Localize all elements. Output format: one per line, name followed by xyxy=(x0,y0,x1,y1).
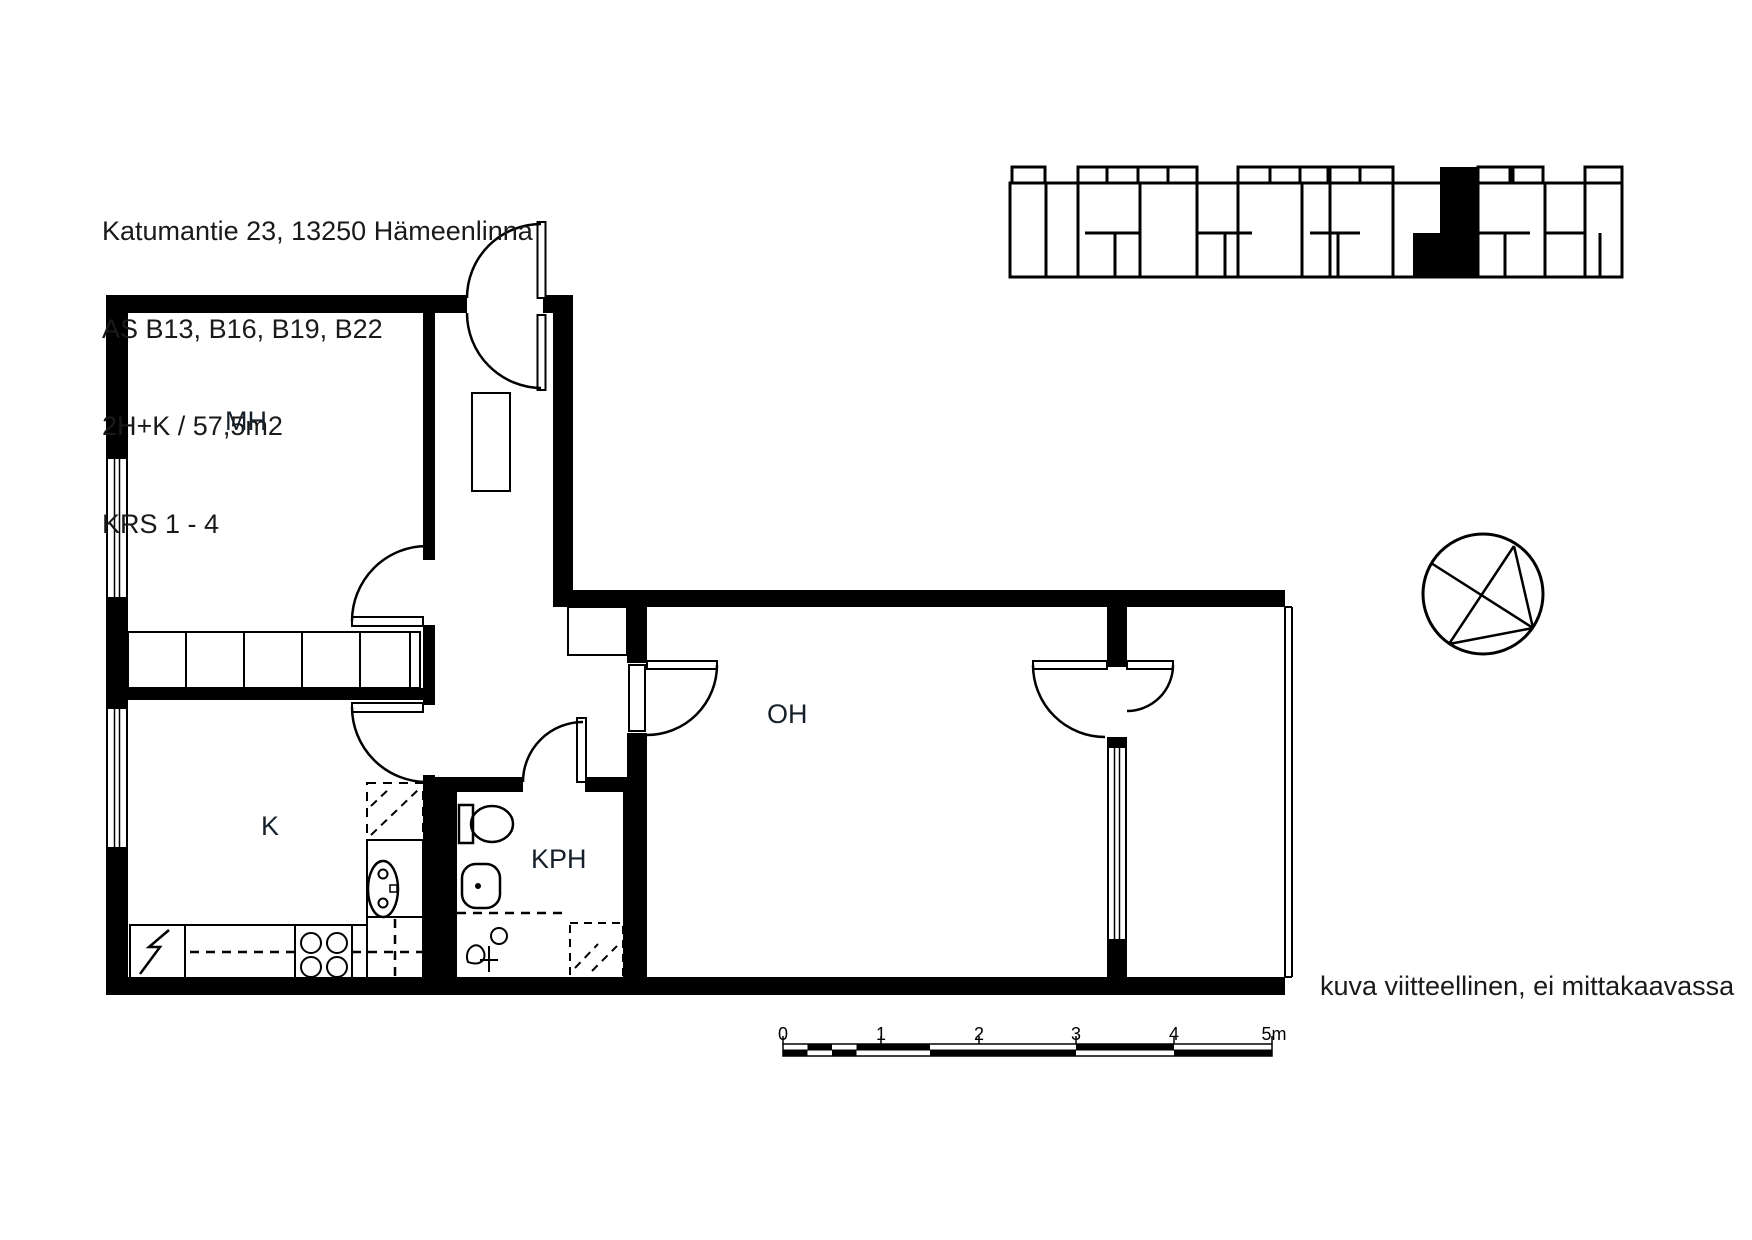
disclaimer-note: kuva viitteellinen, ei mittakaavassa xyxy=(1320,971,1734,1002)
kitchen-sink xyxy=(368,861,398,917)
balcony-door xyxy=(1033,661,1173,737)
address-line: Katumantie 23, 13250 Hämeenlinna xyxy=(102,215,533,248)
room-label-living-room: OH xyxy=(767,699,808,730)
compass-icon xyxy=(1423,534,1543,654)
room-label-bedroom: MH xyxy=(225,406,267,437)
living-room-door xyxy=(629,661,717,735)
scale-tick-4: 4 xyxy=(1156,1024,1192,1045)
room-label-bathroom: KPH xyxy=(531,844,587,875)
scale-tick-3: 3 xyxy=(1058,1024,1094,1045)
scale-tick-0: 0 xyxy=(765,1024,801,1045)
bathroom-door xyxy=(523,718,586,782)
kitchen-door xyxy=(352,703,427,782)
site-plan-outline xyxy=(1010,167,1622,277)
floor-plan-page: Katumantie 23, 13250 Hämeenlinna AS B13,… xyxy=(0,0,1752,1240)
corner-duct xyxy=(568,607,627,655)
apartment-type-line: 2H+K / 57,5m2 xyxy=(102,410,533,443)
floors-line: KRS 1 - 4 xyxy=(102,508,533,541)
fridge-symbol xyxy=(140,930,169,974)
apartment-ids-line: AS B13, B16, B19, B22 xyxy=(102,313,533,346)
scale-tick-1: 1 xyxy=(863,1024,899,1045)
scale-bar xyxy=(783,1036,1272,1056)
living-room-window xyxy=(1108,747,1126,940)
scale-tick-5: 5m xyxy=(1256,1024,1292,1045)
scale-tick-2: 2 xyxy=(961,1024,997,1045)
bedroom-closets xyxy=(128,632,420,688)
washbasin xyxy=(462,864,500,908)
bathroom-fixtures xyxy=(457,805,623,980)
room-label-kitchen: K xyxy=(261,811,279,842)
balcony-rail xyxy=(1285,607,1292,977)
kitchen-window xyxy=(107,708,127,848)
appliance-reservation xyxy=(570,923,623,980)
title-block: Katumantie 23, 13250 Hämeenlinna AS B13,… xyxy=(102,150,533,605)
toilet xyxy=(459,805,513,843)
washing-machine-symbol xyxy=(467,928,507,972)
stove-burners xyxy=(301,933,347,977)
